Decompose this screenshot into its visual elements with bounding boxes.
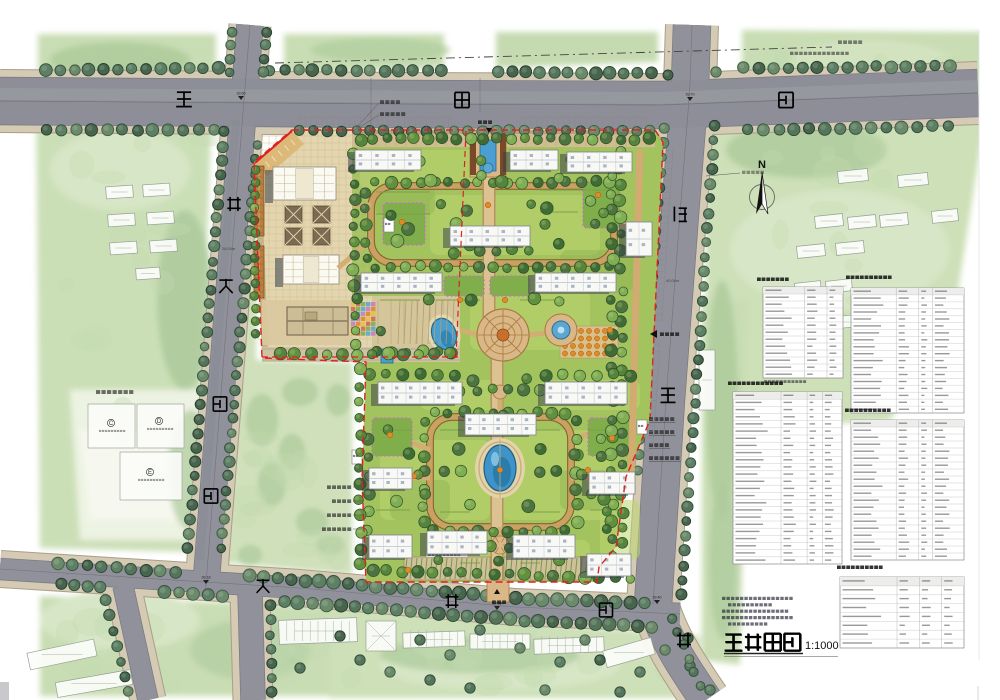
svg-text:39.18: 39.18 bbox=[202, 576, 211, 580]
svg-text:1:1000: 1:1000 bbox=[805, 640, 839, 652]
svg-text:39.40: 39.40 bbox=[653, 596, 662, 600]
svg-text:39.70: 39.70 bbox=[686, 93, 695, 97]
svg-text:C: C bbox=[109, 421, 114, 427]
svg-text:28.00m: 28.00m bbox=[222, 246, 236, 251]
svg-text:40.00m: 40.00m bbox=[666, 278, 680, 283]
svg-text:E: E bbox=[148, 470, 152, 476]
svg-text:N: N bbox=[758, 159, 766, 171]
svg-text:39.50: 39.50 bbox=[237, 92, 246, 96]
svg-text:39.30: 39.30 bbox=[493, 602, 502, 606]
svg-text:D: D bbox=[157, 419, 162, 425]
